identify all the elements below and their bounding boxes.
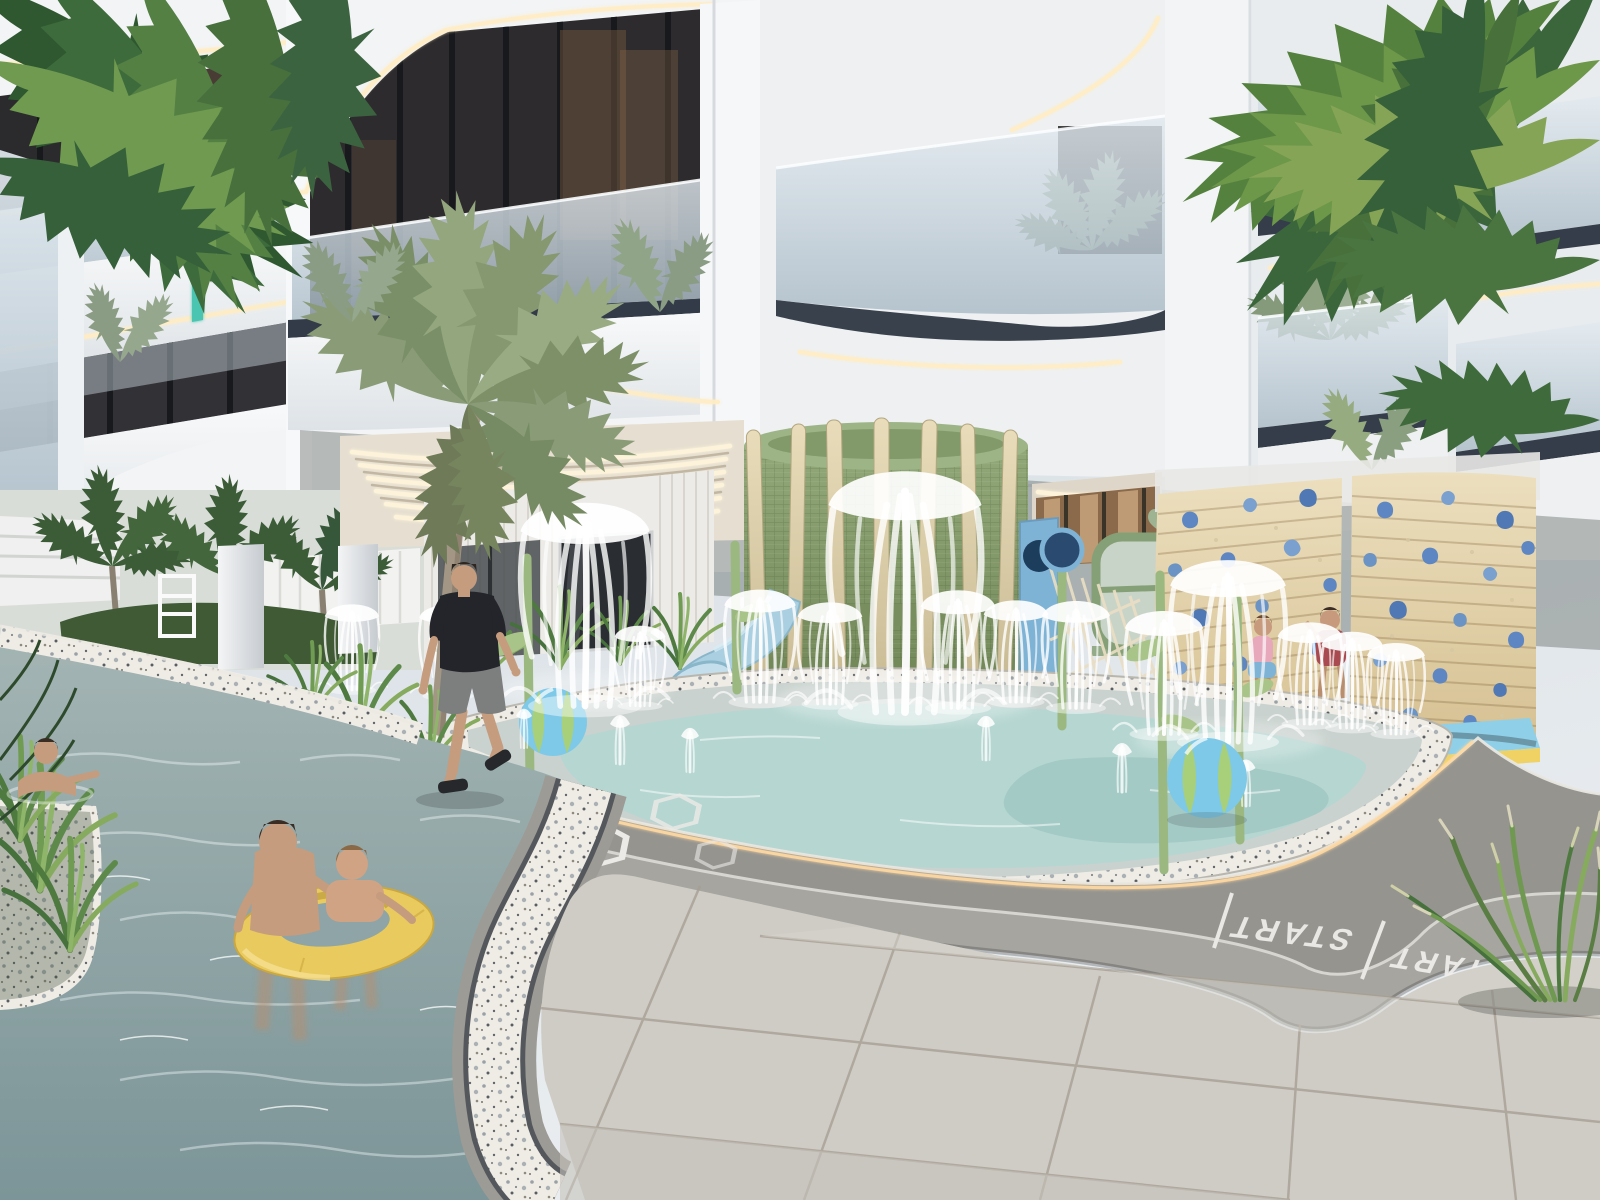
- column: [218, 544, 264, 670]
- column: [338, 544, 378, 654]
- lollipop-sprinkler: [1042, 530, 1082, 570]
- architectural-render: START START: [0, 0, 1600, 1200]
- beach-ball: [1167, 738, 1247, 818]
